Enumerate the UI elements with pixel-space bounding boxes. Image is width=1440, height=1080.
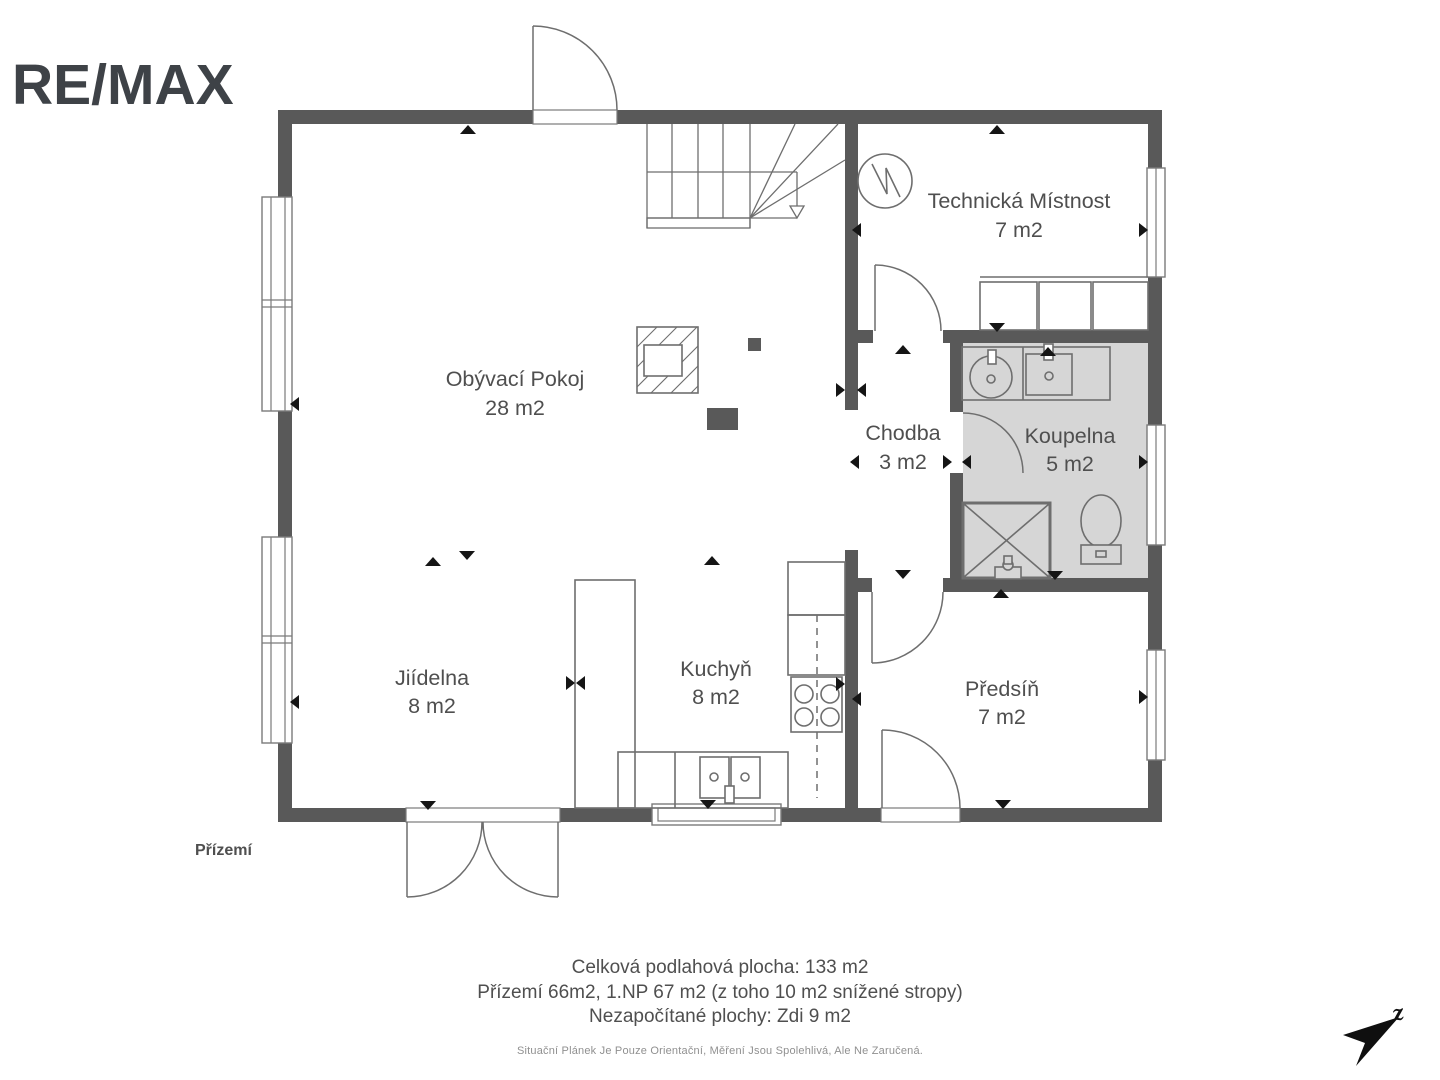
dimension-marker-icon (995, 800, 1011, 809)
kitchen-sink (700, 757, 760, 803)
window-bathroom (1147, 425, 1165, 545)
floorplan-page: RE/MAX Přízemí (0, 0, 1440, 1080)
footer-excluded-areas: Nezapočítané plochy: Zdi 9 m2 (0, 1005, 1440, 1030)
window-left-2 (262, 537, 292, 743)
footer-floor-areas: Přízemí 66m2, 1.NP 67 m2 (z toho 10 m2 s… (0, 981, 1440, 1006)
entry-door-threshold (881, 808, 960, 822)
toilet (1081, 495, 1121, 564)
dimension-marker-icon (704, 556, 720, 565)
window-entry (1147, 650, 1165, 760)
window-kitchen (652, 804, 781, 825)
room-area-hallway: 3 m2 (879, 450, 927, 474)
window-technical (1147, 168, 1165, 277)
entry-exterior-door (882, 730, 960, 808)
dimension-marker-icon (425, 557, 441, 566)
footer: Celková podlahová plocha: 133 m2 Přízemí… (0, 956, 1440, 1063)
dimension-marker-icon (857, 383, 866, 397)
column-large (707, 408, 738, 430)
dimension-marker-icon (989, 125, 1005, 134)
boiler-icon (858, 154, 912, 208)
footer-disclaimer: Situační Plánek Je Pouze Orientační, Měř… (0, 1039, 1440, 1064)
dimension-marker-icon (895, 345, 911, 354)
terrace-door-threshold (406, 808, 560, 822)
technical-cabinets (980, 277, 1148, 330)
floorplan-drawing: Obývací Pokoj 28 m2 Jiídelna 8 m2 Kuchyň… (0, 0, 1440, 1080)
dimension-marker-icon (576, 676, 585, 690)
window-left-1 (262, 197, 292, 411)
technical-room-door (875, 265, 941, 331)
room-label-kitchen: Kuchyň (680, 657, 752, 681)
main-entrance-door (533, 26, 617, 110)
room-area-kitchen: 8 m2 (692, 685, 740, 709)
hallway-entry-door (872, 592, 943, 663)
stairs-down-arrow (790, 206, 804, 218)
room-label-entry: Předsíň (965, 677, 1039, 701)
room-area-living: 28 m2 (485, 396, 545, 420)
room-label-technical: Technická Místnost (928, 189, 1111, 213)
dimension-marker-icon (850, 455, 859, 469)
room-area-bathroom: 5 m2 (1046, 452, 1094, 476)
staircase (647, 124, 845, 228)
dimension-marker-icon (459, 551, 475, 560)
room-label-dining: Jiídelna (395, 666, 469, 690)
terrace-french-doors (407, 822, 558, 897)
room-label-living: Obývací Pokoj (446, 367, 585, 391)
room-label-bathroom: Koupelna (1025, 424, 1116, 448)
dimension-marker-icon (836, 677, 845, 691)
room-label-hallway: Chodba (865, 421, 940, 445)
dimension-marker-icon (566, 676, 575, 690)
dimension-marker-icon (895, 570, 911, 579)
room-area-dining: 8 m2 (408, 694, 456, 718)
chimney (637, 327, 698, 393)
column-small (748, 338, 761, 351)
main-door-threshold (533, 110, 617, 124)
dimension-marker-icon (460, 125, 476, 134)
footer-total-area: Celková podlahová plocha: 133 m2 (0, 956, 1440, 981)
dimension-marker-icon (836, 383, 845, 397)
room-area-technical: 7 m2 (995, 218, 1043, 242)
room-area-entry: 7 m2 (978, 705, 1026, 729)
